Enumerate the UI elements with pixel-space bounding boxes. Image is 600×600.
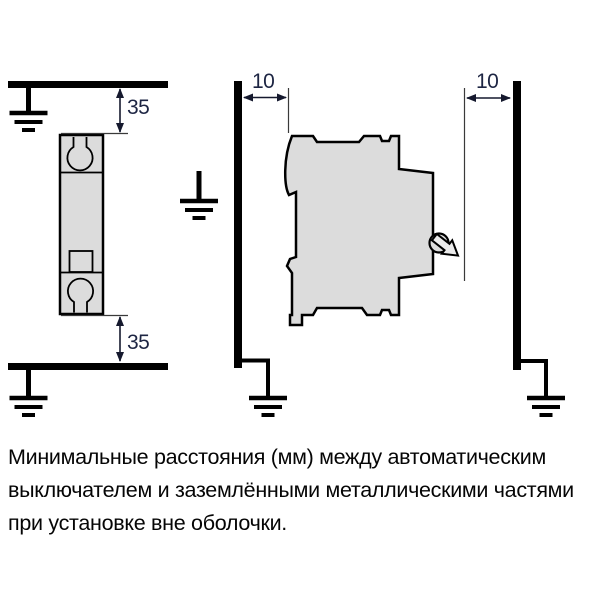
clearance-diagram: 35 35 [0,0,600,435]
caption-line-1: Минимальные расстояния (мм) между автома… [8,441,592,474]
earth-ground-icon [180,171,218,218]
caption-text: Минимальные расстояния (мм) между автома… [8,441,592,540]
caption-line-3: при установке вне оболочки. [8,507,592,540]
left-wall-bar [234,81,242,368]
breaker-side-body [285,136,433,325]
side-view-panel: 10 10 [234,70,565,415]
dimension-label-top: 35 [127,96,149,119]
earth-ground-icon [515,361,565,415]
dimension-label-right: 10 [476,70,498,93]
earth-ground-icon [240,361,287,416]
circuit-breaker-front-view [60,135,103,314]
bottom-wall-bar [8,363,168,370]
earth-ground-icon [10,84,48,130]
front-view-panel: 35 35 [8,81,168,415]
dimension-label-bottom: 35 [127,331,149,354]
circuit-breaker-side-view [285,136,463,325]
page: 35 35 [0,0,600,600]
right-wall-bar [513,81,521,370]
breaker-front-window [70,251,93,272]
dimension-label-left: 10 [252,70,274,93]
top-wall-bar [8,81,168,88]
caption-line-2: выключателем и заземлёнными металлически… [8,474,592,507]
earth-ground-icon [10,369,48,415]
breaker-front-body [60,135,103,314]
